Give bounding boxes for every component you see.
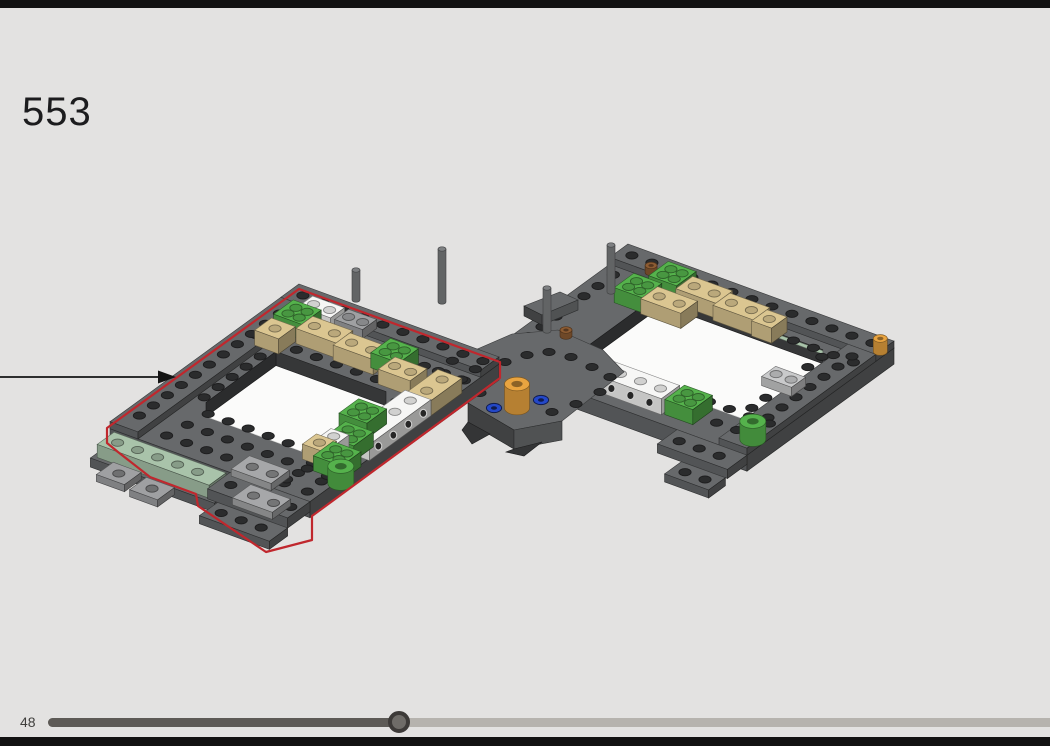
progress-slider-track[interactable] — [48, 718, 1050, 727]
progress-slider-thumb[interactable] — [388, 711, 410, 733]
page-number-label: 48 — [20, 714, 36, 730]
bottom-bar — [0, 737, 1050, 746]
progress-pager: 48 — [0, 700, 1050, 740]
step-arrow-icon — [0, 371, 176, 384]
lego-step-illustration — [0, 0, 1050, 746]
progress-slider-fill — [48, 718, 399, 727]
page-background: 553 48 — [0, 0, 1050, 746]
model-viewport[interactable] — [0, 0, 1050, 746]
